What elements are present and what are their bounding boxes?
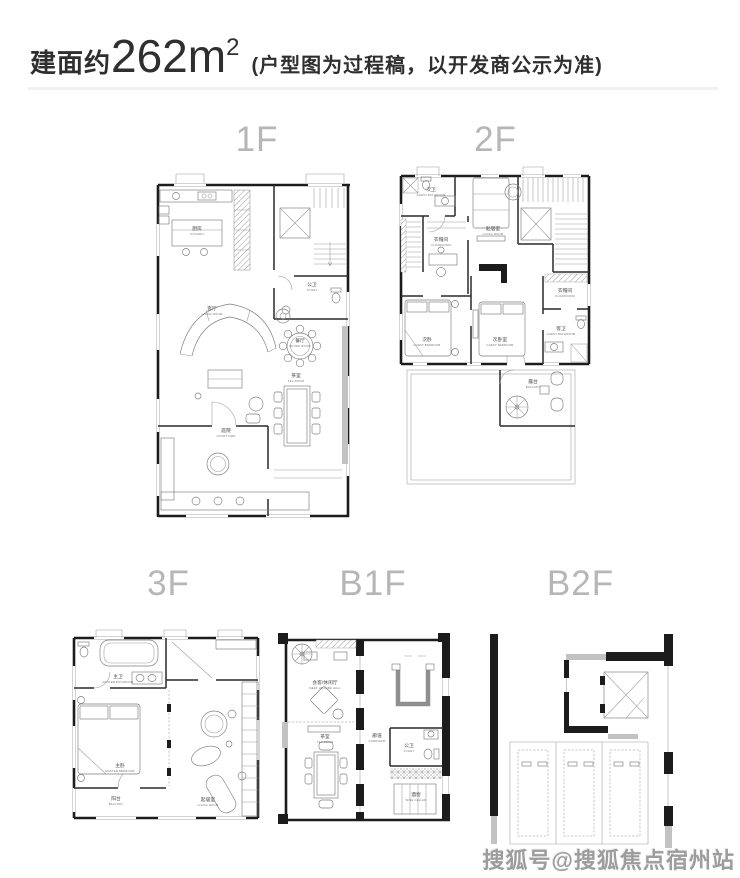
b1f-leisure-furniture	[288, 652, 354, 732]
room-label-wine-cellar-en: WINE CELLAR	[406, 798, 427, 802]
room-label-guest-bath2-en: GUEST BATHROOM	[547, 332, 576, 336]
room-label-toilet-zh: 公卫	[307, 282, 317, 288]
1f-kitchen	[159, 190, 250, 270]
room-label-balcony-zh: 露台	[528, 378, 538, 385]
room-label-tearoom-en: TEA ROOM	[317, 740, 334, 744]
room-label-kitchen-zh: 厨房	[192, 225, 202, 232]
room-label-guest-bed-en: GUEST BEDROOM	[413, 343, 441, 347]
room-label-toilet-en: TOILET	[404, 749, 415, 753]
floor-label-b2f: B2F	[547, 564, 614, 608]
b1f-walls	[278, 633, 450, 824]
header-divider	[28, 87, 718, 90]
room-label-tearoom-zh: 茶室	[320, 733, 330, 740]
floorplan-b2f-drawing	[478, 626, 683, 866]
floorplan-b1f-drawing: 会客/休闲厅 MEET LEISURE HALL 茶室 TEA ROOM 廊道 …	[278, 628, 468, 853]
room-label-living-en: LIVING ROOM	[202, 312, 223, 316]
room-label-kitchen-en: KITCHEN	[190, 232, 204, 236]
room-label-balcony-zh: 阳台	[111, 795, 121, 802]
room-label-master-bath-zh: 主卫	[113, 673, 123, 680]
area-value: 262m	[111, 33, 226, 79]
room-label-master-bath-en: MASTER BATHROOM	[102, 680, 134, 684]
room-label-leisure-hall-en: MEET LEISURE HALL	[309, 686, 341, 690]
b2f-walls	[490, 634, 673, 848]
room-label-guest-bed2-en: GUEST BEDROOM	[486, 343, 514, 347]
room-label-guest-bath-zh: 次卫	[426, 186, 436, 193]
3f-living-furniture	[172, 640, 258, 816]
room-label-cloak-left-zh: 衣帽间	[434, 236, 449, 243]
2f-bedroom-left	[405, 300, 459, 356]
spiral-stair	[506, 396, 528, 418]
area-superscript: 2	[226, 34, 239, 62]
2f-stairs-left	[401, 219, 421, 272]
2f-cloakroom-left	[427, 222, 466, 277]
floor-label-b1f: B1F	[339, 564, 406, 608]
room-label-balcony-en: BALCONY	[526, 385, 541, 389]
floorplan-3f-figure: 3F	[66, 564, 271, 828]
b1f-toilet-fixtures	[424, 730, 439, 759]
room-label-toilet-zh: 公卫	[404, 743, 414, 749]
b2f-elevator-room	[564, 652, 666, 739]
watermark: 搜狐号@搜狐焦点宿州站	[483, 843, 735, 875]
room-label-master-bed-en: MASTER BEDROOM	[105, 769, 135, 773]
room-label-living-en: LIVING ROOM	[198, 803, 219, 807]
room-label-master-bed-zh: 主卧	[115, 762, 125, 769]
room-label-corridor-zh: 廊道	[372, 732, 382, 739]
room-label-cloak-right-zh: 衣帽间	[558, 287, 573, 294]
floorplan-2f-drawing: 次卫 GUEST BATHROOM 起居室 LIVING ROOM 衣帽间 CL…	[393, 164, 598, 504]
floor-label-1f: 1F	[236, 120, 279, 164]
room-label-guest-bath2-zh: 客卫	[556, 325, 566, 332]
floorplan-2f-figure: 2F	[393, 120, 598, 504]
2f-bedroom-mid	[473, 302, 525, 356]
room-label-guest-bed2-zh: 次卧室	[493, 336, 508, 343]
room-label-tearoom-en: TEA ROOM	[288, 379, 305, 383]
room-label-cloak-right-en: CLOAKROOM	[555, 294, 575, 298]
room-label-living-zh: 客厅	[207, 305, 217, 312]
1f-stairs-elevator	[280, 188, 346, 266]
room-label-living-zh: 起居室	[486, 225, 501, 232]
room-label-dining-zh: 餐厅	[295, 337, 305, 344]
room-label-living-zh: 起居室	[201, 796, 216, 803]
b2f-parking-spaces	[510, 742, 648, 844]
room-label-toilet-en: TOILET	[307, 288, 318, 292]
2f-stairs-elevator	[521, 178, 587, 264]
room-label-leisure-hall-zh: 会客/休闲厅	[312, 679, 338, 686]
room-label-dining-en: DINING ROOM	[289, 344, 311, 348]
room-label-guest-bed-zh: 次卧	[422, 336, 432, 343]
disclaimer-note: (户型图为过程稿，以开发商公示为准)	[251, 49, 602, 78]
3f-bedroom	[78, 697, 141, 782]
1f-living-furniture	[180, 304, 290, 423]
2f-bathroom-bottom	[545, 316, 587, 362]
room-label-wine-cellar-zh: 酒窖	[411, 791, 421, 798]
room-label-cloak-left-en: CLOAKROOM	[431, 243, 451, 247]
room-label-courtyard-zh: 庭院	[221, 427, 231, 434]
floorplan-3f-drawing: 主卫 MASTER BATHROOM 主卧 MASTER BEDROOM 阳台 …	[66, 628, 271, 828]
room-label-courtyard-en: COURTYARD	[216, 434, 235, 438]
area-prefix: 建面约	[30, 43, 111, 80]
1f-courtyard-furniture	[161, 438, 342, 510]
floor-label-2f: 2F	[474, 120, 517, 164]
floor-label-3f: 3F	[147, 564, 190, 608]
floorplan-b2f-figure: B2F	[478, 564, 683, 866]
b1f-tearoom-furniture	[305, 742, 347, 808]
floorplan-1f-figure: 1F	[146, 120, 368, 524]
room-label-living-en: LIVING ROOM	[483, 232, 504, 236]
room-label-guest-bath-en: GUEST BATHROOM	[417, 193, 446, 197]
2f-cloakroom-right	[545, 274, 587, 282]
floorplan-sheet: 建面约 262m 2 (户型图为过程稿，以开发商公示为准) 1F	[0, 0, 740, 878]
room-label-balcony-en: BALCONY	[109, 802, 124, 806]
b1f-storage-seat	[392, 656, 434, 704]
page-title: 建面约 262m 2 (户型图为过程稿，以开发商公示为准)	[30, 33, 603, 80]
floorplan-1f-drawing: 厨房 KITCHEN 公卫 TOILET 客厅 LIVING ROOM 餐厅 D…	[146, 164, 368, 524]
1f-tearoom-furniture	[274, 386, 320, 446]
room-label-corridor-en: CORRIDOR	[369, 739, 386, 743]
room-label-tearoom-zh: 茶室	[291, 372, 301, 379]
2f-terrace	[407, 370, 575, 484]
floorplan-b1f-figure: B1F	[278, 564, 468, 853]
